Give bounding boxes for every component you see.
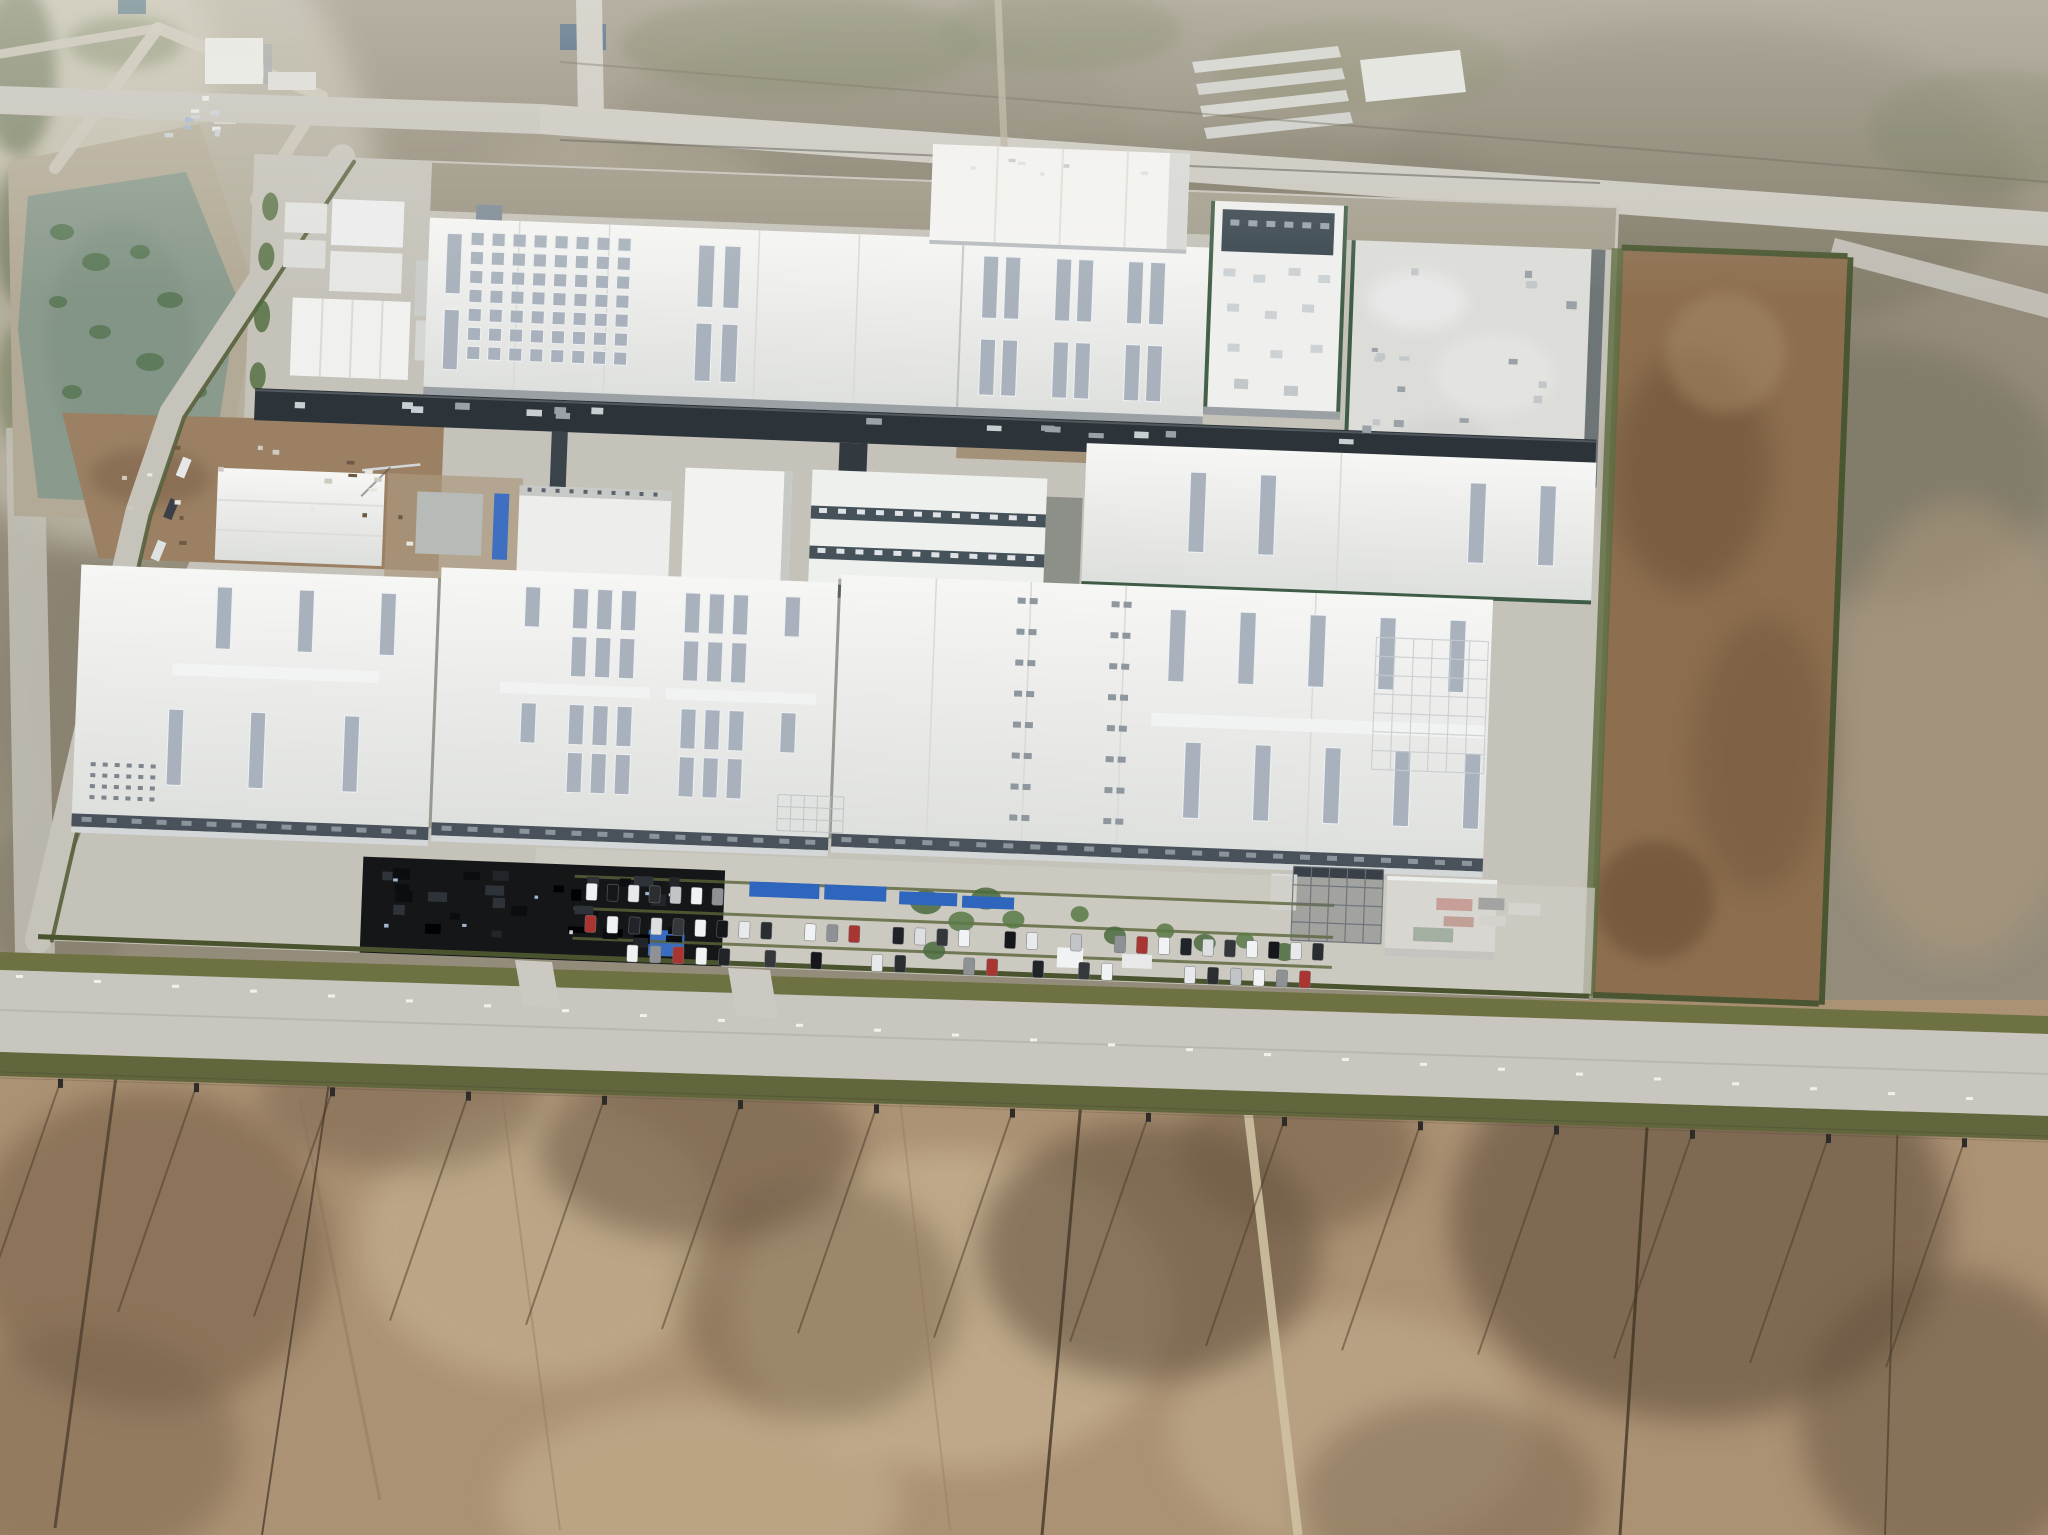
window-band	[1028, 516, 1036, 521]
rooftop-unit	[1270, 350, 1282, 358]
window-band	[838, 509, 846, 514]
power-pole	[466, 1092, 471, 1101]
material-pile	[493, 898, 506, 909]
skylight	[684, 593, 701, 634]
power-pole	[1010, 1109, 1015, 1118]
roof-vent	[468, 308, 481, 321]
roof-vent	[593, 332, 606, 345]
roof-vent	[1030, 598, 1038, 604]
roof-vent	[1026, 691, 1034, 697]
dock-door	[805, 840, 815, 845]
skylight	[215, 587, 232, 650]
corridor-vehicle	[411, 406, 423, 413]
dock-door	[356, 827, 366, 832]
terrain-feature	[1043, 497, 1083, 594]
dock-door	[281, 824, 291, 829]
parked-car	[1290, 942, 1302, 959]
blue-trailer	[824, 884, 887, 901]
power-pole	[1418, 1121, 1423, 1130]
rooftop-equipment	[1399, 356, 1409, 361]
rooftop-unit	[1227, 343, 1239, 351]
corridor-vehicle	[1045, 426, 1061, 433]
skylight	[572, 588, 589, 629]
roof-vent	[1122, 633, 1130, 639]
dock-door	[1246, 852, 1256, 857]
window-band	[1007, 555, 1015, 560]
window-band	[988, 554, 996, 559]
window-band	[876, 510, 884, 515]
window-dot	[541, 488, 545, 492]
debris	[147, 473, 152, 477]
dock-door	[649, 834, 659, 839]
rooftop-equipment	[1362, 425, 1371, 433]
debris	[398, 515, 402, 519]
roof-vent	[489, 309, 502, 322]
debris	[348, 474, 357, 477]
skylight	[1182, 742, 1201, 819]
parked-car	[848, 925, 860, 942]
debris	[179, 541, 186, 545]
corridor-vehicle	[526, 409, 542, 416]
corridor-vehicle	[1166, 431, 1177, 438]
dock-door	[1462, 861, 1472, 866]
parked-car	[1101, 963, 1113, 980]
roof-vent	[102, 774, 107, 778]
road-marker	[94, 980, 101, 983]
dock-door	[1327, 856, 1337, 861]
rooftop-equipment	[1372, 348, 1378, 352]
roof-vent	[103, 763, 108, 767]
rooftop-equipment	[1539, 381, 1547, 388]
window-dot	[625, 491, 629, 495]
window-dot	[653, 492, 657, 496]
power-pole	[602, 1096, 607, 1105]
skylight	[704, 710, 721, 751]
parked-car	[1299, 971, 1311, 988]
rooftop-equipment	[1509, 359, 1518, 365]
roof-vent	[1107, 725, 1115, 731]
rooftop-equipment	[1534, 396, 1543, 404]
parked-car	[1026, 932, 1038, 949]
skylight	[1168, 609, 1187, 682]
debris	[374, 478, 382, 482]
road-marker	[1654, 1077, 1661, 1080]
rooftop-unit	[1265, 311, 1277, 319]
roof-vent	[1024, 753, 1032, 759]
road-marker	[796, 1024, 803, 1027]
roof-vent	[89, 795, 94, 799]
parked-car	[1032, 960, 1044, 977]
parked-car	[607, 916, 619, 933]
skylight	[728, 711, 745, 752]
dock-door	[406, 829, 416, 834]
skylight	[702, 758, 719, 799]
road-marker	[1888, 1092, 1895, 1095]
roof-vent	[1110, 632, 1118, 638]
material-pile	[425, 924, 441, 935]
tarp	[569, 930, 573, 934]
parked-car	[963, 958, 975, 975]
terrain-patch	[680, 1180, 960, 1420]
roof-vent	[1027, 660, 1035, 666]
parked-car	[695, 919, 707, 936]
dock-door	[976, 842, 986, 847]
dock-door	[467, 827, 477, 832]
blue-trailer	[749, 881, 820, 899]
window-dot	[555, 489, 559, 493]
power-pole	[1282, 1117, 1287, 1126]
debris	[347, 461, 355, 465]
corridor-vehicle	[295, 402, 305, 409]
roof-vent	[102, 785, 107, 789]
dock-door	[331, 826, 341, 831]
dock-door	[1381, 858, 1391, 863]
roof-vent	[488, 347, 501, 360]
window-band	[895, 511, 903, 516]
road-marker	[640, 1014, 647, 1017]
roof-vent	[1009, 814, 1017, 820]
corridor-vehicle	[1088, 433, 1103, 439]
terrain-patch	[62, 385, 82, 399]
material-pile	[491, 930, 501, 937]
roof-vent	[1120, 695, 1128, 701]
parked-car	[894, 955, 906, 972]
dock-door	[1408, 859, 1418, 864]
roof-vent	[571, 350, 584, 363]
road-marker	[328, 995, 335, 998]
roof-vent	[614, 333, 627, 346]
skylight	[1392, 750, 1411, 827]
debris	[369, 488, 378, 492]
parked-car	[761, 922, 773, 939]
parked-car	[958, 930, 970, 947]
debris	[175, 500, 181, 505]
dock-door	[922, 840, 932, 845]
road-marker	[1498, 1068, 1505, 1071]
material-pile	[571, 889, 582, 901]
tarp	[384, 924, 389, 928]
skylight	[979, 339, 996, 396]
parked-car	[1184, 966, 1196, 983]
parked-car	[670, 886, 682, 903]
skylight	[1322, 747, 1341, 824]
roof-vent	[139, 764, 144, 768]
window-dot	[569, 489, 573, 493]
roof-vent	[150, 775, 155, 779]
roof-vent	[138, 775, 143, 779]
skylight	[1467, 483, 1486, 564]
roof-vent	[1018, 598, 1026, 604]
material-pile	[511, 906, 527, 917]
parked-car	[914, 928, 926, 945]
roof-vent	[91, 762, 96, 766]
rooftop-equipment	[1372, 419, 1380, 426]
roof-vent	[572, 331, 585, 344]
dock-door	[1354, 857, 1364, 862]
dock-door	[701, 836, 711, 841]
parked-car	[672, 947, 684, 964]
window-band	[857, 509, 865, 514]
skylight	[620, 590, 637, 631]
parked-car	[717, 920, 729, 937]
roof-vent	[151, 764, 156, 768]
dock-door	[1111, 847, 1121, 852]
road-marker	[1108, 1043, 1115, 1046]
roof-vent	[1119, 726, 1127, 732]
window-band	[836, 549, 844, 554]
road-marker	[952, 1034, 959, 1037]
roof-vent	[137, 797, 142, 801]
power-pole	[874, 1104, 879, 1113]
parked-car	[1004, 931, 1016, 948]
parked-car	[1246, 941, 1258, 958]
roof-vent	[113, 796, 118, 800]
parked-car	[651, 918, 663, 935]
debris	[362, 513, 367, 517]
mid-building	[415, 491, 483, 555]
skylight	[706, 642, 723, 683]
window-band	[952, 513, 960, 518]
dock-door	[1057, 845, 1067, 850]
roof-vent	[138, 786, 143, 790]
corridor-vehicle	[556, 412, 571, 419]
debris	[272, 450, 279, 455]
roof-vent	[510, 310, 523, 323]
roof-vent	[1015, 659, 1023, 665]
parked-car	[712, 888, 724, 905]
roof-vent	[1028, 629, 1036, 635]
skylight	[708, 594, 725, 635]
roof-vent	[149, 797, 154, 801]
roof-vent	[1118, 756, 1126, 762]
roof-vent	[530, 330, 543, 343]
skylight	[520, 703, 537, 744]
debris	[179, 516, 183, 520]
roof-vent	[1109, 663, 1117, 669]
debris	[122, 476, 127, 480]
skylight	[780, 713, 797, 754]
roof-vent	[1021, 815, 1029, 821]
dock-door	[895, 839, 905, 844]
parked-car	[585, 915, 597, 932]
skylight	[618, 638, 635, 679]
parked-car	[1224, 940, 1236, 957]
skylight	[1001, 340, 1018, 397]
corridor-vehicle	[866, 418, 882, 425]
parked-car	[986, 959, 998, 976]
corridor-vehicle	[591, 407, 603, 414]
road-marker	[1342, 1058, 1349, 1061]
window-band	[819, 508, 827, 513]
rooftop-unit	[1234, 379, 1248, 390]
skylight	[1258, 475, 1277, 556]
roof-vent	[1014, 690, 1022, 696]
rooftop-equipment	[1394, 420, 1404, 427]
parked-car	[739, 921, 751, 938]
roof-vent	[1010, 783, 1018, 789]
parked-car	[628, 885, 640, 902]
debris	[258, 446, 263, 450]
skylight	[166, 709, 184, 786]
skylight	[1308, 615, 1327, 688]
roof-vent	[114, 785, 119, 789]
parked-car	[764, 950, 776, 967]
window-band	[971, 514, 979, 519]
dock-door	[779, 839, 789, 844]
parked-car	[826, 924, 838, 941]
dock-door	[1219, 851, 1229, 856]
roof-vent	[126, 774, 131, 778]
window-band	[969, 554, 977, 559]
debris	[128, 506, 133, 510]
roof-vent	[550, 349, 563, 362]
parked-car	[695, 947, 707, 964]
roof-vent	[127, 763, 132, 767]
parked-car	[586, 883, 598, 900]
material-pile	[392, 868, 410, 880]
dock-door	[545, 830, 555, 835]
roof-vent	[1116, 787, 1124, 793]
material-pile	[574, 906, 593, 915]
road-marker	[16, 975, 23, 978]
dock-door	[1030, 844, 1040, 849]
material-pile	[666, 935, 682, 942]
parked-car	[650, 946, 662, 963]
parked-car	[1158, 937, 1170, 954]
road-marker	[484, 1004, 491, 1007]
mid-building	[681, 468, 792, 590]
power-pole	[1146, 1113, 1151, 1122]
skylight	[694, 323, 712, 382]
rooftop-unit	[1227, 303, 1239, 311]
road-marker	[1420, 1063, 1427, 1066]
parked-car	[1114, 936, 1126, 953]
roof-vent	[1108, 694, 1116, 700]
power-pole	[1962, 1138, 1967, 1147]
roof-vent	[1025, 722, 1033, 728]
parked-car	[1253, 969, 1265, 986]
parked-car	[1180, 938, 1192, 955]
parked-car	[892, 927, 904, 944]
dock-door	[675, 835, 685, 840]
roof-vent	[1103, 818, 1111, 824]
parked-car	[810, 952, 822, 969]
parked-car	[804, 924, 816, 941]
corridor-vehicle	[455, 402, 470, 409]
dock-door	[597, 832, 607, 837]
power-pole	[58, 1079, 63, 1088]
roof-vent	[115, 763, 120, 767]
material-pile	[463, 871, 480, 880]
debris	[310, 508, 314, 512]
dock-door	[131, 819, 141, 824]
blue-trailer	[962, 896, 1014, 910]
skylight	[570, 636, 587, 677]
road-marker	[1576, 1073, 1583, 1076]
roof-vent	[529, 349, 542, 362]
skylight	[1537, 486, 1556, 567]
window-band	[914, 511, 922, 516]
roof-vent	[1112, 601, 1120, 607]
rooftop-unit	[1284, 386, 1298, 397]
parked-car	[607, 884, 619, 901]
debris	[365, 469, 373, 474]
roof-vent	[150, 786, 155, 790]
dock-door	[156, 820, 166, 825]
dock-door	[206, 822, 216, 827]
material-pile	[393, 905, 405, 915]
parked-car	[1207, 967, 1219, 984]
material-pile	[485, 885, 504, 896]
dock-door	[1138, 848, 1148, 853]
skylight	[594, 637, 611, 678]
blue-trailer	[899, 891, 957, 906]
link-corridor	[550, 432, 568, 489]
dock-door	[1300, 855, 1310, 860]
roof-vent	[594, 313, 607, 326]
skylight	[1051, 342, 1068, 399]
skylight	[1188, 472, 1207, 553]
skylight	[678, 757, 695, 798]
road-marker	[1030, 1038, 1037, 1041]
road-marker	[562, 1009, 569, 1012]
roof-vent	[573, 312, 586, 325]
parked-car	[1268, 941, 1280, 958]
mid-building	[808, 470, 1047, 593]
skylight	[614, 754, 631, 795]
skylight	[596, 589, 613, 630]
debris	[218, 467, 224, 472]
skylight	[1123, 344, 1140, 401]
dock-door	[1165, 849, 1175, 854]
dock-door	[231, 823, 241, 828]
material-pile	[394, 884, 409, 891]
roof-vent	[1121, 664, 1129, 670]
skylight	[524, 587, 541, 628]
debris	[173, 446, 181, 450]
corridor-vehicle	[1134, 431, 1149, 438]
window-band	[817, 548, 825, 553]
roof-vent	[592, 351, 605, 364]
skylight	[379, 593, 396, 656]
debris	[324, 478, 332, 483]
window-band	[855, 549, 863, 554]
parked-car	[649, 886, 661, 903]
terrain-patch	[89, 325, 111, 339]
skylight	[590, 753, 607, 794]
roof-vent	[1012, 752, 1020, 758]
corridor-vehicle	[1339, 439, 1354, 445]
power-pole	[194, 1083, 199, 1092]
skylight	[592, 705, 609, 746]
dock-door	[381, 828, 391, 833]
aerial-photo-scene	[0, 0, 2048, 1535]
roof-vent	[1013, 721, 1021, 727]
dock-door	[181, 821, 191, 826]
parked-car	[1070, 934, 1082, 951]
skylight	[726, 759, 743, 800]
road-marker	[1186, 1048, 1193, 1051]
roof-vent	[1016, 629, 1024, 635]
dock-door	[623, 833, 633, 838]
skylight	[568, 704, 585, 745]
parked-car	[691, 887, 703, 904]
debris	[406, 542, 413, 546]
skylight	[248, 712, 266, 789]
dock-door	[306, 825, 316, 830]
tarp	[393, 878, 398, 881]
parked-car	[629, 917, 641, 934]
